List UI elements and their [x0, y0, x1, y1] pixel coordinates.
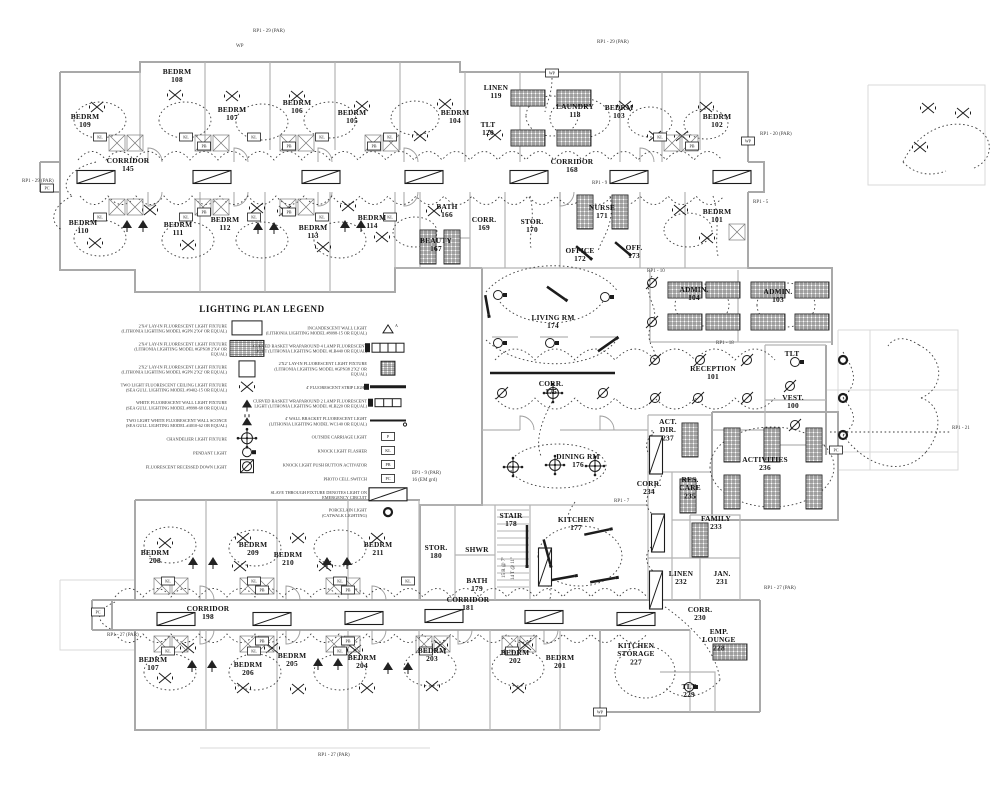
- strip-fixture-icon: [551, 574, 578, 582]
- circuit-label: RP1 - 21: [952, 426, 970, 431]
- svg-text:A: A: [395, 323, 398, 328]
- cx-fixture-icon: [913, 142, 928, 152]
- bracket-fixture-icon: [370, 421, 407, 427]
- dr-fixture-icon: [646, 277, 658, 289]
- flh-fixture-icon: [511, 130, 545, 146]
- svg-text:KL: KL: [251, 579, 257, 584]
- shx-fixture-icon: [298, 135, 314, 151]
- svg-text:PB: PB: [201, 210, 206, 215]
- room-label: VEST.100: [782, 393, 804, 410]
- dr-fixture-icon: [646, 316, 658, 328]
- room-label: BEDRM205: [278, 651, 307, 668]
- wire-run: [495, 398, 775, 409]
- ws-fixture-icon: [122, 220, 132, 232]
- svg-text:KL: KL: [405, 579, 411, 584]
- pb-switch-box: PB: [342, 637, 355, 645]
- room-label: KITCHEN177: [558, 515, 595, 532]
- circuit-label: RP1 - 7: [614, 499, 630, 504]
- flv-fixture-icon: [692, 523, 708, 557]
- room-label: BEDRM202: [501, 648, 530, 665]
- svg-text:PB: PB: [345, 639, 350, 644]
- shx-fixture-icon: [109, 199, 125, 215]
- lighting-plan-sheet: { "title": "LIGHTING PLAN", "colors": { …: [0, 0, 1000, 785]
- ws-fixture-icon: [187, 660, 197, 672]
- room-label: BEDRM111: [164, 220, 193, 237]
- pc-switch-box: PC: [92, 608, 105, 616]
- room-label: TLT229: [682, 682, 697, 699]
- cx-fixture-icon: [233, 561, 248, 571]
- em-fixture-icon: [302, 171, 340, 184]
- cx-fixture-icon: [158, 673, 173, 683]
- legend-item-text: WHITE FLUORESCENT WALL LIGHT FIXTURE(SEA…: [126, 400, 228, 410]
- wire-run: [921, 398, 938, 452]
- room-label: BEDRM113: [299, 223, 328, 240]
- wire-run: [903, 162, 946, 174]
- room-label: BEDRM107: [218, 105, 247, 122]
- light-fixtures: KLKLKLKLKLKLKLKLKLKLKLKLKLKLKLKLKLKLKLKL…: [41, 69, 971, 716]
- kl-switch-box: KL: [384, 133, 397, 141]
- pd-fixture-icon: [243, 448, 257, 457]
- kl-switch-box: KL: [180, 133, 193, 141]
- wire-run: [974, 128, 989, 168]
- pc-switch-box: PC: [830, 446, 843, 454]
- flh-fixture-icon: [706, 282, 740, 298]
- cx-fixture-icon: [316, 242, 331, 252]
- shx-fixture-icon: [729, 224, 745, 240]
- wire-run: [78, 152, 722, 161]
- kl-switch-box: KL: [402, 577, 415, 585]
- svg-text:KL: KL: [183, 215, 189, 220]
- cx-fixture-icon: [699, 102, 714, 112]
- svg-text:KL: KL: [183, 135, 189, 140]
- room-label: LIVING RM174: [531, 313, 574, 330]
- cx-fixture-icon: [360, 683, 375, 693]
- drq-fixture-icon: [241, 460, 254, 473]
- kl-switch-box: KL: [94, 133, 107, 141]
- room-label: CORR.169: [472, 215, 497, 232]
- cx-fixture-icon: [291, 684, 306, 694]
- svg-text:KL: KL: [319, 215, 325, 220]
- svg-text:KL: KL: [97, 135, 103, 140]
- room-label: CORR.230: [688, 605, 713, 622]
- room-label: BEDRM110: [69, 218, 98, 235]
- circuit-label: 14 T @ 11": [511, 557, 516, 580]
- kl-switch-box: KL: [316, 213, 329, 221]
- room-label: BEDRM204: [348, 653, 377, 670]
- pb-switch-box: PB: [382, 460, 395, 468]
- legend-item-text: 2'X4' LAY-IN FLUORESCENT LIGHT FIXTURE(L…: [122, 324, 228, 334]
- svg-text:PB: PB: [286, 144, 291, 149]
- circuit-label: RP1 - 20 (PAR): [760, 132, 792, 137]
- room-label: BEDRM203: [418, 646, 447, 663]
- svg-text:PC: PC: [833, 448, 838, 453]
- em-fixture-icon: [369, 488, 407, 501]
- circuit-label: RP1 - 9: [592, 181, 608, 186]
- legend-item-text: PHOTO CELL SWITCH: [324, 477, 367, 482]
- pb-switch-box: PB: [283, 142, 296, 150]
- room-label: SHWR: [465, 545, 489, 554]
- boxP-fixture-icon: P: [382, 432, 395, 440]
- pb-switch-box: PB: [686, 142, 699, 150]
- flh-fixture-icon: [511, 90, 545, 106]
- flh-fixture-icon: [668, 314, 702, 330]
- svg-text:KL: KL: [337, 649, 343, 654]
- strip-fixture-icon: [590, 576, 619, 584]
- legend-item-text: INCANDESCENT WALL LIGHT(LITHONIA LIGHTIN…: [266, 326, 368, 336]
- ws-fixture-icon: [342, 557, 352, 569]
- wire-run: [888, 339, 919, 346]
- kl-switch-box: KL: [162, 647, 175, 655]
- wire-run: [843, 352, 854, 398]
- pc-switch-box: PC: [382, 474, 395, 482]
- wsA-fixture-icon: A: [383, 323, 398, 333]
- wire-run: [236, 222, 288, 258]
- pd-fixture-icon: [601, 293, 615, 302]
- sq-fixture-icon: [239, 361, 255, 377]
- kl-switch-box: KL: [248, 647, 261, 655]
- svg-text:PC: PC: [385, 476, 390, 481]
- cx-fixture-icon: [700, 233, 715, 243]
- flv-fixture-icon: [806, 428, 822, 462]
- strip-fixture-icon: [597, 336, 619, 353]
- legend-item-text: 2'X2' LAY-IN FLUORESCENT LIGHT FIXTURE(L…: [122, 365, 228, 375]
- svg-text:KL: KL: [251, 135, 257, 140]
- wire-run: [664, 213, 712, 247]
- svg-text:KL: KL: [657, 135, 663, 140]
- ch-fixture-icon: [503, 457, 524, 478]
- circuit-label: EP1 - 9 (PAR): [412, 471, 441, 476]
- room-label: CORR.234: [637, 479, 662, 496]
- cx-fixture-icon: [236, 683, 251, 693]
- wire-run: [843, 398, 854, 435]
- legend-item-text: CURVED BASKET WRAPAROUND 2 LAMP FLUORESC…: [253, 398, 367, 408]
- svg-text:PC: PC: [44, 186, 49, 191]
- room-label: BEDRM109: [71, 112, 100, 129]
- flv-fixture-icon: [764, 475, 780, 509]
- ws-fixture-icon: [208, 557, 218, 569]
- room-label: LAUNDRY118: [556, 102, 595, 119]
- cx-fixture-icon: [511, 683, 526, 693]
- wire-run: [713, 196, 718, 256]
- wrap2-fixture-icon: [368, 399, 401, 407]
- ws-fixture-icon: [333, 658, 343, 670]
- flv-fixture-icon: [806, 475, 822, 509]
- wire-run: [314, 530, 366, 566]
- cx-fixture-icon: [375, 232, 390, 242]
- legend-item-text: KNOCK LIGHT PUSH BUTTON ACTIVATOR: [283, 463, 367, 468]
- dr-fixture-icon: [496, 387, 508, 399]
- legend-item-text: 4' FLUORESCENT STRIP LIGHT: [306, 385, 367, 390]
- svg-text:PB: PB: [286, 210, 291, 215]
- ws-fixture-icon: [269, 222, 279, 234]
- svg-text:PB: PB: [201, 144, 206, 149]
- ws-fixture-icon: [188, 557, 198, 569]
- room-label: BEDRM112: [211, 215, 240, 232]
- room-label: BEDRM210: [274, 550, 303, 567]
- legend-item-text: 2'X2' LAY-IN FLUORESCENT LIGHT FIXTURE(L…: [274, 361, 367, 376]
- cx-fixture-icon: [240, 382, 255, 392]
- circuit-label: RP1 - 5: [753, 200, 769, 205]
- em-fixture-icon: [525, 611, 563, 624]
- svg-text:PB: PB: [259, 639, 264, 644]
- room-label: BEDRM209: [239, 540, 268, 557]
- wire-run: [486, 266, 618, 292]
- cx-fixture-icon: [425, 681, 440, 691]
- ws-fixture-icon: [138, 220, 148, 232]
- em-fixture-icon: [510, 171, 548, 184]
- circuit-label: RP1 - 18: [716, 341, 734, 346]
- room-label: ACT.DIR.237: [659, 417, 677, 442]
- cx-fixture-icon: [956, 108, 971, 118]
- svg-text:KL: KL: [165, 649, 171, 654]
- legend-item-text: CURVED BASKET WRAPAROUND 4 LAMP FLUORESC…: [253, 343, 367, 353]
- room-label: RECEPTION101: [690, 364, 736, 381]
- kl-switch-box: KL: [334, 577, 347, 585]
- room-label: BEDRM107: [139, 655, 168, 672]
- pd-fixture-icon: [494, 339, 508, 348]
- legend-item-text: SLAVE THROUGH FIXTURE DENOTES LIGHT ONEM…: [271, 490, 368, 500]
- wire-run: [539, 402, 552, 456]
- svg-text:WP: WP: [549, 71, 556, 76]
- svg-text:KL: KL: [337, 579, 343, 584]
- em-fixture-icon: [713, 171, 751, 184]
- flv-fixture-icon: [682, 423, 698, 457]
- dr-fixture-icon: [784, 380, 796, 392]
- ch-fixture-icon: [237, 428, 258, 449]
- room-label: BATH179: [466, 576, 487, 593]
- svg-text:KL: KL: [251, 215, 257, 220]
- room-label: STOR.170: [521, 217, 544, 234]
- shx-fixture-icon: [109, 135, 125, 151]
- svg-text:WP: WP: [597, 710, 604, 715]
- wire-run: [843, 435, 926, 466]
- cx-fixture-icon: [225, 91, 240, 101]
- emv-fixture-icon: [650, 436, 663, 474]
- room-label: STAIR178: [499, 511, 523, 528]
- em-fixture-icon: [253, 613, 291, 626]
- em-fixture-icon: [610, 171, 648, 184]
- cx-fixture-icon: [143, 205, 158, 215]
- em-fixture-icon: [77, 171, 115, 184]
- svg-text:KL: KL: [387, 215, 393, 220]
- shx-fixture-icon: [213, 135, 229, 151]
- svg-text:KL: KL: [387, 135, 393, 140]
- room-label: BATH166: [436, 202, 457, 219]
- em-fixture-icon: [345, 612, 383, 625]
- em-fixture-icon: [405, 171, 443, 184]
- strip-fixture-icon: [526, 525, 529, 568]
- wp-switch-box: WP: [742, 137, 755, 145]
- em-fixture-icon: [425, 610, 463, 623]
- circuit-label: RP1 - 27 (PAR): [318, 753, 350, 758]
- circuit-label: RP1 - 27 (PAR): [107, 633, 139, 638]
- room-label: LINEN119: [484, 83, 509, 100]
- ws2-fixture-icon: [242, 414, 252, 425]
- svg-text:PC: PC: [95, 610, 100, 615]
- wire-run: [628, 107, 672, 137]
- flv-fixture-icon: [612, 195, 628, 229]
- flh-fixture-icon: [795, 282, 829, 298]
- wp-switch-box: WP: [594, 708, 607, 716]
- room-label: KITCHENSTORAGE227: [617, 641, 654, 666]
- room-label: CORRIDOR168: [551, 157, 594, 174]
- p-switch-box: P: [382, 432, 395, 440]
- circuit-label: RP1 - 29 (PAR): [22, 179, 54, 184]
- wp-switch-box: WP: [546, 69, 559, 77]
- room-label: BEDRM206: [234, 660, 263, 677]
- kl-switch-box: KL: [382, 446, 395, 454]
- cx-fixture-icon: [168, 90, 183, 100]
- legend-item-text: TWO LIGHT WHITE FLUORESCENT WALL SCONCE(…: [126, 418, 228, 428]
- legend-item-text: TWO LIGHT FLUORESCENT CEILING LIGHT FIXT…: [121, 382, 228, 392]
- cx-fixture-icon: [921, 103, 936, 113]
- cx-fixture-icon: [90, 102, 105, 112]
- svg-text:KL: KL: [97, 215, 103, 220]
- ws-fixture-icon: [253, 222, 263, 234]
- em-fixture-icon: [617, 613, 655, 626]
- circuit-label: RP1 - 10: [647, 269, 665, 274]
- room-label: CORR.175: [539, 379, 564, 396]
- flv-fixture-icon: [577, 195, 593, 229]
- circuit-label: RP1 - 29 (PAR): [597, 40, 629, 45]
- rect-fixture-icon: [232, 321, 262, 335]
- room-label: BEDRM103: [605, 103, 634, 120]
- emv-fixture-icon: [652, 514, 665, 552]
- flh-fixture-icon: [706, 314, 740, 330]
- room-label: BEDRM102: [703, 112, 732, 129]
- shx-fixture-icon: [213, 199, 229, 215]
- legend-title: LIGHTING PLAN LEGEND: [199, 304, 325, 314]
- ws-fixture-icon: [207, 660, 217, 672]
- kl-switch-box: KL: [162, 577, 175, 585]
- pd-fixture-icon: [494, 291, 508, 300]
- cx-fixture-icon: [413, 131, 428, 141]
- shx-fixture-icon: [298, 199, 314, 215]
- svg-text:PB: PB: [689, 144, 694, 149]
- room-label: BEDRM101: [703, 207, 732, 224]
- pb-switch-box: PB: [198, 142, 211, 150]
- flh-fixture-icon: [751, 314, 785, 330]
- dr-fixture-icon: [741, 354, 753, 366]
- legend-item-text: 2'X4' LAY-IN FLUORESCENT LIGHT FIXTURE(L…: [134, 341, 227, 356]
- pd-fixture-icon: [791, 358, 805, 367]
- wire-run: [903, 124, 976, 162]
- pb-switch-box: PB: [198, 208, 211, 216]
- flsq-fixture-icon: [381, 361, 395, 375]
- pd-fixture-icon: [546, 339, 560, 348]
- pb-switch-box: PB: [256, 637, 269, 645]
- svg-text:KL: KL: [319, 135, 325, 140]
- cx-fixture-icon: [181, 240, 196, 250]
- room-label: BEDRM108: [163, 67, 192, 84]
- ws-fixture-icon: [383, 662, 393, 674]
- flv-fixture-icon: [724, 428, 740, 462]
- legend-item-text: 4' WALL BRACKET FLUORESCENT LIGHT(LITHON…: [269, 416, 368, 426]
- cx-fixture-icon: [88, 238, 103, 248]
- ws-fixture-icon: [242, 400, 252, 412]
- room-label: ACTIVITIES236: [742, 455, 788, 472]
- svg-text:KL: KL: [385, 448, 391, 453]
- wrap4-fixture-icon: [365, 343, 404, 352]
- room-label: BEDRM211: [364, 540, 393, 557]
- circuit-label: RP1 - 29 (PAR): [253, 29, 285, 34]
- svg-text:PB: PB: [385, 462, 390, 467]
- kl-switch-box: KL: [316, 133, 329, 141]
- dr-fixture-icon: [597, 387, 609, 399]
- legend-item-text: FLUORESCENT RECESSED DOWN LIGHT: [146, 465, 228, 470]
- po-fixture-icon: [384, 508, 392, 516]
- pb-switch-box: PB: [368, 142, 381, 150]
- svg-text:PB: PB: [259, 588, 264, 593]
- shx-fixture-icon: [127, 199, 143, 215]
- boxPB-fixture-icon: PB: [382, 460, 395, 468]
- kl-switch-box: KL: [248, 577, 261, 585]
- svg-text:PB: PB: [371, 144, 376, 149]
- strip-fixture-icon: [484, 295, 491, 318]
- legend-item-text: OUTSIDE CARRIAGE LIGHT: [312, 435, 368, 440]
- strip4-fixture-icon: [364, 384, 406, 390]
- wire-run: [495, 349, 775, 360]
- kl-switch-box: KL: [248, 133, 261, 141]
- wire-run: [391, 101, 439, 135]
- legend-item-text: KNOCK LIGHT FLASHER: [318, 449, 367, 454]
- pb-switch-box: PB: [283, 208, 296, 216]
- boxPC-fixture-icon: PC: [382, 474, 395, 482]
- lighting-plan-drawing: KLKLKLKLKLKLKLKLKLKLKLKLKLKLKLKLKLKLKLKL…: [0, 0, 1000, 785]
- emv-fixture-icon: [650, 571, 663, 609]
- cx-fixture-icon: [291, 533, 306, 543]
- pb-switch-box: PB: [342, 586, 355, 594]
- flh-fixture-icon: [795, 314, 829, 330]
- svg-text:PB: PB: [345, 588, 350, 593]
- dr-fixture-icon: [789, 419, 801, 431]
- pb-switch-box: PB: [256, 586, 269, 594]
- legend-item-text: PENDANT LIGHT: [193, 451, 227, 456]
- kl-switch-box: KL: [654, 133, 667, 141]
- room-label: STOR.180: [425, 543, 448, 560]
- room-label: TLT120: [481, 120, 496, 137]
- flh-fixture-icon: [557, 130, 591, 146]
- kl-switch-box: KL: [334, 647, 347, 655]
- legend-item-text: CHANDELIER LIGHT FIXTURE: [166, 437, 227, 442]
- room-label: JAN.231: [713, 569, 730, 586]
- svg-text:WP: WP: [745, 139, 752, 144]
- room-label: DINING RM176: [556, 452, 599, 469]
- pc-switch-box: PC: [41, 184, 54, 192]
- svg-text:KL: KL: [251, 649, 257, 654]
- em-fixture-icon: [193, 171, 231, 184]
- room-label: ADMIN.104: [680, 285, 709, 302]
- circuit-label: WP: [236, 44, 244, 49]
- legend: LIGHTING PLAN LEGEND 2'X4' LAY-IN FLUORE…: [121, 304, 407, 518]
- room-label: BEDRM105: [338, 108, 367, 125]
- circuit-label: RP1 - 27 (PAR): [764, 586, 796, 591]
- kl-switch-box: KL: [248, 213, 261, 221]
- legend-item-text: PORCELAIN LIGHT(CATWALK LIGHTING): [322, 508, 368, 518]
- wire-run: [545, 78, 552, 112]
- dr-fixture-icon: [741, 392, 753, 404]
- room-label: OFFICE172: [565, 246, 594, 263]
- room-label: TLT: [785, 349, 800, 358]
- room-label: BEDRM201: [546, 653, 575, 670]
- flv-fixture-icon: [724, 475, 740, 509]
- dr-fixture-icon: [692, 392, 704, 404]
- strip-fixture-icon: [546, 285, 568, 302]
- po-fixture-icon: [839, 356, 847, 364]
- room-label: BEDRM106: [283, 98, 312, 115]
- em-fixture-icon: [157, 613, 195, 626]
- svg-text:KL: KL: [165, 579, 171, 584]
